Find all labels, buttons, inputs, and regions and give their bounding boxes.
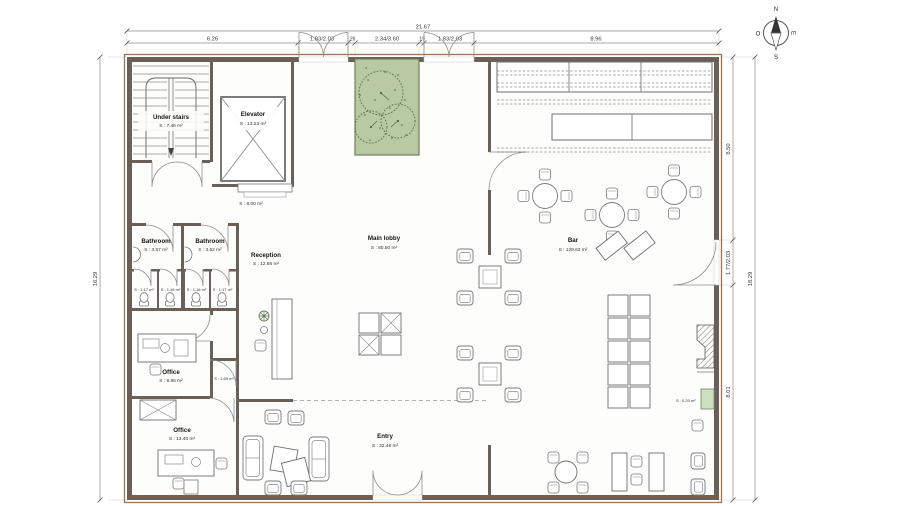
label-elevator: Elevator bbox=[241, 111, 266, 118]
wall-armchair-1 bbox=[691, 453, 705, 469]
wall-stool bbox=[692, 420, 703, 431]
area-under-stairs: S : 7.46 m² bbox=[159, 123, 183, 129]
reception-stool bbox=[261, 327, 268, 334]
wall-planter bbox=[701, 389, 714, 409]
dim-top-total: 21.67 bbox=[416, 25, 431, 31]
compass-west-label: O bbox=[756, 32, 761, 38]
dim-top-seg-2: .26 bbox=[349, 37, 356, 43]
compass-north-label: N bbox=[774, 7, 778, 13]
label-bathroom-left: Bathroom bbox=[141, 238, 171, 245]
area-bar: S : 129.63 m² bbox=[559, 247, 588, 253]
label-bar: Bar bbox=[568, 237, 579, 244]
area-corridor: S : 1.69 m² bbox=[214, 376, 234, 381]
wall-armchair-2 bbox=[691, 479, 705, 495]
office-lower-side-chair bbox=[216, 458, 227, 469]
label-office-lower: Office bbox=[173, 427, 191, 434]
dim-right-seg-1: 1.77/2.03 bbox=[726, 251, 732, 275]
dim-right-total: 18.29 bbox=[748, 272, 754, 287]
label-entry: Entry bbox=[377, 433, 393, 440]
toilet-3 bbox=[192, 293, 201, 306]
area-wc-2: S : 1.16 m² bbox=[161, 287, 181, 292]
area-entry: S : 32.48 m² bbox=[372, 443, 399, 449]
toilet-2 bbox=[166, 293, 175, 306]
label-under-stairs: Under stairs bbox=[153, 114, 190, 121]
label-office-upper: Office bbox=[162, 369, 180, 376]
office-lower-chair bbox=[173, 478, 184, 489]
entry-sofa-left bbox=[243, 436, 263, 480]
area-bathroom-right: S : 3.62 m² bbox=[198, 247, 222, 253]
label-main-lobby: Main lobby bbox=[368, 235, 401, 242]
floor-plan-canvas: 21.67 6.26 1.83/2.03 .26 2.34/3.60 .19 1… bbox=[0, 0, 900, 506]
compass-east-label: E bbox=[790, 31, 796, 35]
area-bathroom-left: S : 3.57 m² bbox=[144, 247, 168, 253]
toilet-1 bbox=[140, 293, 149, 306]
label-bathroom-right: Bathroom bbox=[195, 238, 225, 245]
office-upper-chair bbox=[150, 364, 161, 375]
dim-top-seg-0: 6.26 bbox=[207, 37, 218, 43]
area-hall: S : 8.00 m² bbox=[239, 201, 263, 207]
area-elevator: S : 13.23 m² bbox=[240, 121, 267, 127]
area-wc-4: S : 1.17 m² bbox=[213, 287, 233, 292]
area-main-lobby: S : 80.50 m² bbox=[371, 245, 398, 251]
area-wc-3: S : 1.16 m² bbox=[187, 287, 207, 292]
entry-sofa-right bbox=[309, 437, 329, 481]
area-office-lower: S : 13.40 m² bbox=[169, 436, 196, 442]
dim-right-seg-0: 8.50 bbox=[726, 143, 732, 154]
area-wc-1: S : 1.17 m² bbox=[134, 287, 154, 292]
area-office-upper: S : 9.85 m² bbox=[159, 378, 183, 384]
dim-top-seg-3: 2.34/3.60 bbox=[375, 37, 399, 43]
dim-left-total: 16.29 bbox=[93, 272, 99, 287]
area-reception: S : 12.86 m² bbox=[253, 261, 280, 267]
entry-planter bbox=[355, 59, 419, 155]
area-wall-planter: S : 0.20 m² bbox=[676, 398, 696, 403]
label-reception: Reception bbox=[251, 252, 281, 259]
dim-right-seg-2: 8.01 bbox=[726, 386, 732, 397]
plant-icon bbox=[259, 311, 269, 321]
reception-chair bbox=[255, 340, 266, 351]
compass-needle-south bbox=[771, 33, 781, 50]
compass-needle-north bbox=[771, 16, 781, 33]
compass-rose: N S O E bbox=[756, 7, 796, 61]
floor-plan-drawing: 21.67 6.26 1.83/2.03 .26 2.34/3.60 .19 1… bbox=[0, 0, 900, 506]
compass-south-label: S bbox=[774, 55, 778, 61]
toilet-4 bbox=[218, 293, 227, 306]
dim-top-seg-6: 8.96 bbox=[590, 37, 601, 43]
